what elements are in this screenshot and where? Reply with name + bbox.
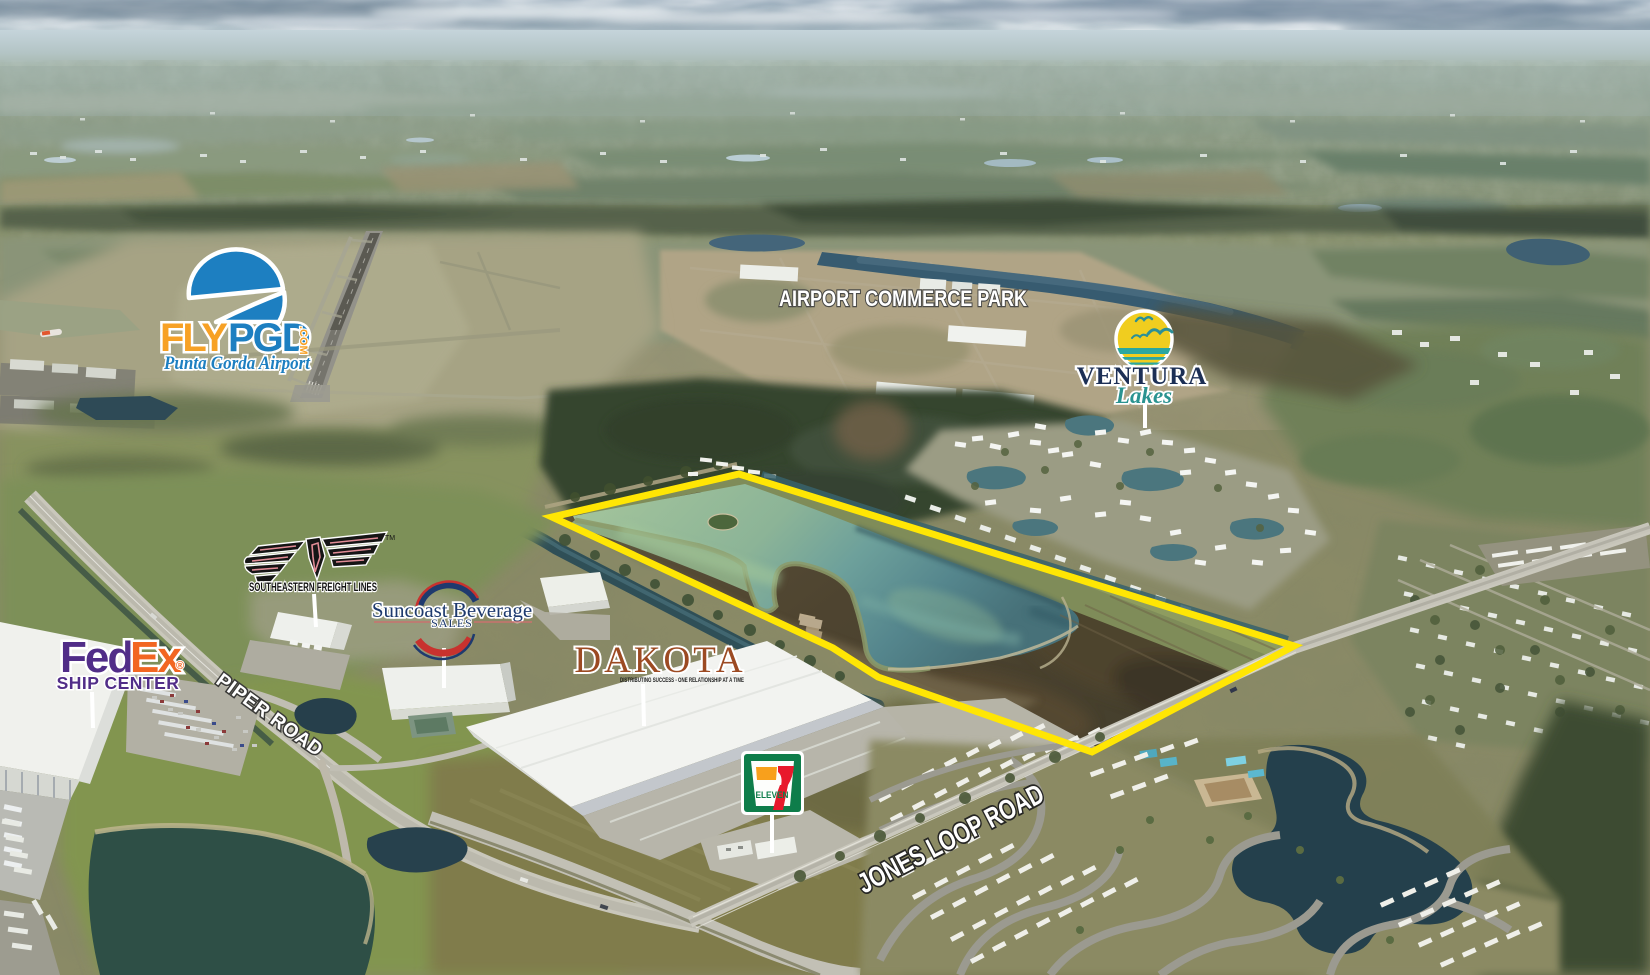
svg-text:SOUTHEASTERN FREIGHT LINES: SOUTHEASTERN FREIGHT LINES bbox=[249, 580, 377, 594]
svg-text:®: ® bbox=[176, 660, 184, 672]
svg-text:SHIP CENTER: SHIP CENTER bbox=[57, 673, 180, 693]
svg-text:DAKOTA: DAKOTA bbox=[574, 640, 745, 681]
svg-text:ELEVEN: ELEVEN bbox=[756, 790, 789, 800]
svg-text:DISTRIBUTING SUCCESS - ONE REL: DISTRIBUTING SUCCESS - ONE RELATIONSHIP … bbox=[620, 678, 744, 684]
svg-text:.COM: .COM bbox=[297, 326, 309, 355]
svg-text:AIRPORT COMMERCE PARK: AIRPORT COMMERCE PARK bbox=[779, 286, 1027, 311]
svg-text:TM: TM bbox=[385, 535, 395, 542]
svg-text:Lakes: Lakes bbox=[1115, 383, 1172, 408]
svg-text:Punta Gorda Airport: Punta Gorda Airport bbox=[163, 353, 311, 374]
svg-text:SALES: SALES bbox=[431, 616, 473, 630]
